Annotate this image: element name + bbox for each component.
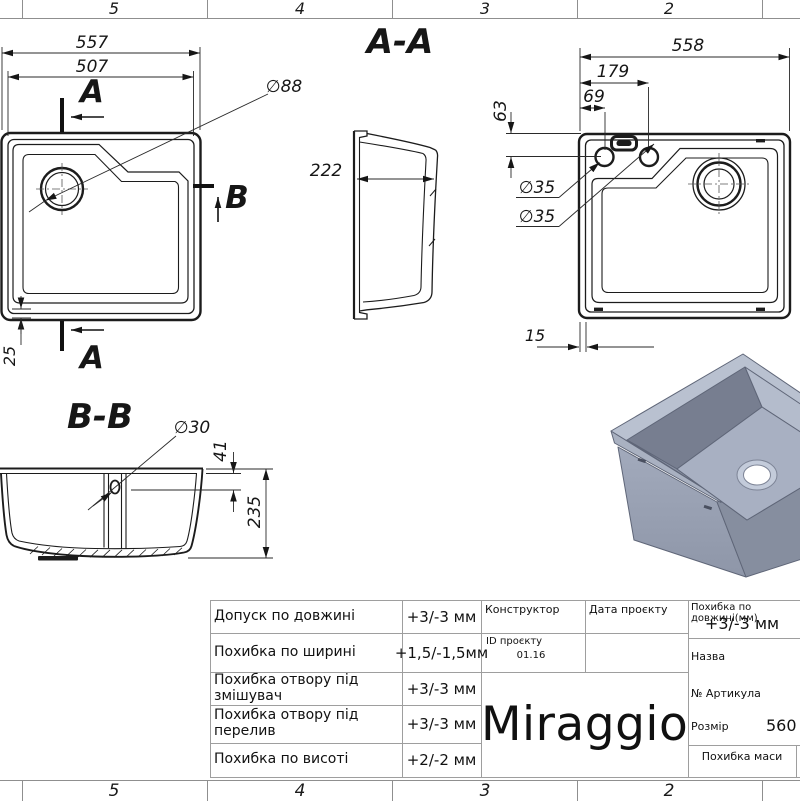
dim-faucet-hole-2: ∅35 bbox=[519, 207, 555, 227]
size-value: 560 bbox=[766, 716, 800, 735]
render-drain-hole bbox=[744, 465, 771, 485]
ruler-tick bbox=[22, 781, 23, 801]
drain-centerlines bbox=[36, 163, 88, 215]
overflow-slot-inner bbox=[617, 141, 632, 147]
dim-holes-top-offset: 63 bbox=[491, 100, 511, 122]
brand-logo: Miraggio bbox=[481, 697, 688, 752]
name-label: Назва bbox=[691, 650, 725, 663]
ruler-zone-label: 5 bbox=[94, 781, 134, 801]
tolerance-value: +3/-3 мм bbox=[402, 705, 481, 743]
dim-flange-width: 15 bbox=[525, 326, 545, 345]
project-date-label: Дата проєкту bbox=[589, 603, 667, 616]
ruler-zone-label: 4 bbox=[280, 781, 320, 801]
ruler-tick bbox=[207, 781, 208, 801]
tolerance-label: Похибка отвору під перелив bbox=[214, 705, 400, 743]
dim-plan-width: 558 bbox=[672, 36, 705, 56]
mass-tolerance-label: Похибка маси bbox=[688, 750, 796, 763]
dim-depth: 222 bbox=[310, 161, 342, 181]
faucet-hole-2 bbox=[640, 148, 658, 166]
dim-overflow-offset: 41 bbox=[211, 440, 231, 462]
sheet-ruler-bottom: 5 4 3 2 bbox=[0, 780, 800, 801]
tolerance-label: Допуск по довжині bbox=[214, 600, 400, 633]
title-block: Допуск по довжині +3/-3 мм Похибка по ши… bbox=[210, 600, 800, 778]
basin-bevel-outer bbox=[13, 145, 188, 304]
tolerance-label: Похибка по висоті bbox=[214, 743, 400, 777]
article-label: № Артикула bbox=[691, 687, 761, 700]
section-letter-a-bottom: A bbox=[77, 340, 104, 376]
project-id-value: 01.16 bbox=[486, 650, 576, 661]
top-view bbox=[2, 133, 201, 320]
section-aa-view bbox=[354, 131, 438, 319]
plan-view bbox=[579, 134, 790, 318]
section-letter-b: B bbox=[225, 180, 249, 216]
section-letter-a-top: A bbox=[77, 74, 104, 110]
ruler-zone-label: 2 bbox=[649, 781, 689, 801]
dim-height: 235 bbox=[245, 496, 265, 528]
dim-holes-span: 179 bbox=[597, 62, 629, 82]
dim-hole-offset: 69 bbox=[583, 87, 605, 107]
tolerance-label: Похибка отвору під змішувач bbox=[214, 672, 400, 705]
plan-view-dimensions bbox=[506, 48, 790, 352]
tolerance-value: +3/-3 мм bbox=[402, 672, 481, 705]
length-tolerance-value: +3/-3 мм bbox=[688, 614, 796, 633]
ruler-tick bbox=[392, 781, 393, 801]
sink-foot bbox=[38, 556, 78, 561]
ruler-tick bbox=[762, 781, 763, 801]
sink-3d-render bbox=[611, 354, 800, 577]
ruler-zone-label: 3 bbox=[465, 781, 505, 801]
plan-bevel-outer bbox=[592, 149, 778, 303]
project-id-label: ID проєкту bbox=[486, 636, 542, 647]
tolerance-value: +1,5/-1,5мм bbox=[402, 633, 481, 672]
section-bb-title: B-B bbox=[67, 397, 133, 437]
size-label: Розмір bbox=[691, 720, 729, 733]
tolerance-label: Похибка по ширині bbox=[214, 633, 400, 672]
section-bb-view bbox=[0, 469, 203, 561]
tolerance-value: +3/-3 мм bbox=[402, 600, 481, 633]
dim-drain-diameter: ∅88 bbox=[266, 77, 303, 97]
dim-outer-width: 557 bbox=[76, 33, 109, 53]
technical-drawing-page: { "page": {"background": "#ffffff", "lin… bbox=[0, 0, 800, 800]
plan-rim bbox=[586, 140, 785, 312]
top-view-rim bbox=[8, 140, 194, 314]
tolerance-value: +2/-2 мм bbox=[402, 743, 481, 777]
ruler-tick bbox=[577, 781, 578, 801]
plan-outer-edge bbox=[579, 134, 790, 318]
dim-corner-offset: 25 bbox=[0, 346, 19, 366]
section-aa-title: A-A bbox=[364, 22, 434, 62]
constructor-label: Конструктор bbox=[485, 603, 559, 616]
dim-faucet-hole-1: ∅35 bbox=[519, 178, 555, 198]
dim-overflow-diameter: ∅30 bbox=[174, 418, 210, 438]
